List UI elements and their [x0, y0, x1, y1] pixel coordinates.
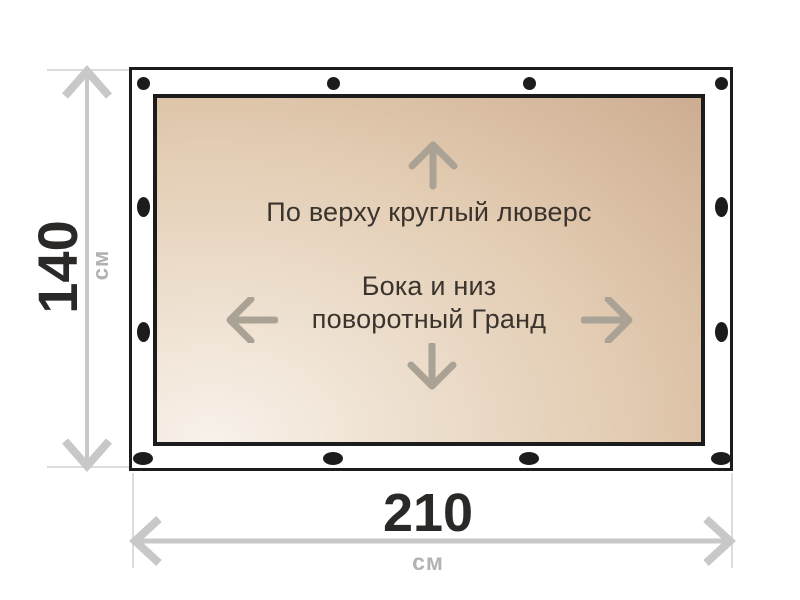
grommet [715, 197, 728, 217]
width-value: 210 [328, 486, 528, 540]
grommet [519, 452, 539, 465]
height-value: 140 [29, 187, 87, 347]
grommet [523, 77, 536, 90]
banner-print-area: По верху круглый люверс Бока и низ повор… [153, 94, 705, 446]
arrow-down-icon [404, 343, 460, 393]
grommet [327, 77, 340, 90]
grommet [715, 77, 728, 90]
height-unit: см [89, 235, 113, 295]
width-unit: см [378, 550, 478, 574]
top-edge-note: По верху круглый люверс [157, 196, 701, 229]
arrow-up-icon [405, 138, 461, 190]
grommet [137, 77, 150, 90]
arrow-right-icon [581, 297, 633, 343]
grommet [137, 197, 150, 217]
banner-outline: По верху круглый люверс Бока и низ повор… [129, 67, 733, 471]
grommet [133, 452, 153, 465]
grommet [323, 452, 343, 465]
grommet [711, 452, 731, 465]
grommet [715, 322, 728, 342]
diagram-canvas: 140 см 210 см [0, 0, 800, 600]
arrow-left-icon [226, 297, 278, 343]
grommet [137, 322, 150, 342]
